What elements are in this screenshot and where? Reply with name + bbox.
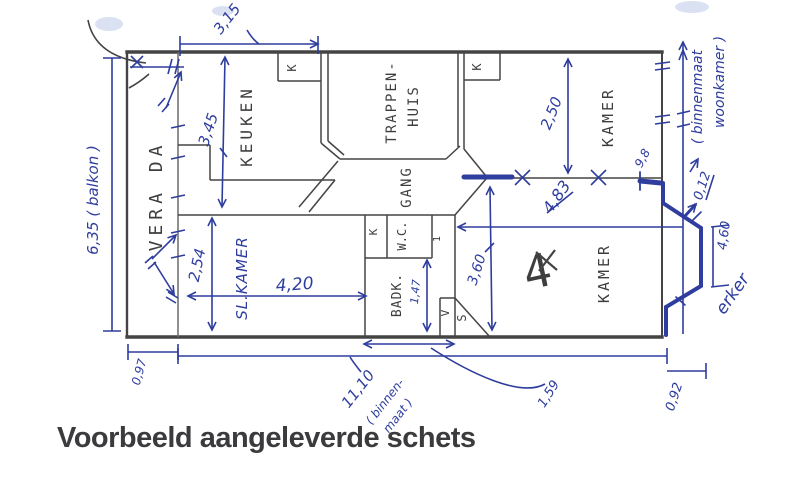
erker-tick xyxy=(693,212,701,220)
caption-title: Voorbeeld aangeleverde schets xyxy=(57,422,476,455)
smudge xyxy=(95,17,123,31)
label-v-box: V xyxy=(439,309,452,316)
dim-slk-height: 2,54 xyxy=(185,247,210,283)
chevron xyxy=(158,98,165,106)
chevron xyxy=(162,104,169,112)
dim-balkon: 6,35 ( balkon ) xyxy=(84,145,102,255)
chevron xyxy=(145,256,153,263)
thick-wall-segment-right xyxy=(640,181,661,183)
label-kast-a: K xyxy=(285,64,299,72)
label-gang: GANG xyxy=(399,166,415,208)
label-s-mark: S xyxy=(455,314,469,321)
label-one-mark: 1 xyxy=(432,236,443,242)
tick xyxy=(655,62,670,64)
note-binnenmaat-2: woonkamer ) xyxy=(712,36,728,128)
leader-top-width xyxy=(247,30,259,44)
pen-heavy-marks xyxy=(464,172,701,335)
dim-seg-159: 1,59 xyxy=(535,378,563,411)
tick xyxy=(655,68,670,70)
pen-dimension-lines xyxy=(103,30,729,388)
dim-veranda-width: 0,97 xyxy=(129,357,150,387)
wall-gang-nw2 xyxy=(309,180,335,212)
dim-kamer-bottom-width: 4,83 xyxy=(538,177,574,217)
smudge xyxy=(675,1,709,13)
wall-trap-se xyxy=(446,146,460,159)
tick xyxy=(655,122,670,124)
dim-kamer-bottom-depth: 3,60 xyxy=(465,252,490,287)
wall-trap-sw xyxy=(321,143,340,159)
highlight-smudges xyxy=(95,1,709,31)
label-keuken: KEUKEN xyxy=(237,85,256,167)
note-binnenmaat-1: ( binnenmaat xyxy=(690,49,706,144)
leader-3-60 xyxy=(485,243,494,252)
arrow-0-12 xyxy=(690,159,698,172)
tick xyxy=(166,297,176,303)
label-kast-b: K xyxy=(470,63,484,71)
dim-badk-depth: 1,47 xyxy=(408,279,423,305)
dim-line-keuken-depth xyxy=(222,57,225,207)
leader-11-10 xyxy=(350,357,361,372)
label-kamer-bottom: KAMER xyxy=(595,243,613,303)
sketch-page: 4 VERA DA KEUKEN TRAPPEN- HUIS GANG KAME… xyxy=(0,0,800,483)
swing-arrow-3 xyxy=(154,262,174,294)
dim-line-kamer-bottom-depth xyxy=(490,187,492,330)
wall-gang-se xyxy=(455,179,486,215)
label-trappenhuis-1: TRAPPEN- xyxy=(384,60,400,143)
dim-top-width: 3,15 xyxy=(210,0,245,37)
door-arcs xyxy=(88,20,149,88)
dim-keuken-depth: 3,45 xyxy=(195,111,222,148)
tick xyxy=(655,115,670,117)
label-veranda: VERA DA xyxy=(146,141,167,252)
label-erker: erker xyxy=(712,269,755,318)
dimension-labels: 3,15 6,35 ( balkon ) 3,45 2,54 SL.KAMER … xyxy=(84,0,755,435)
floorplan-sketch: 4 VERA DA KEUKEN TRAPPEN- HUIS GANG KAME… xyxy=(0,0,800,483)
label-badkamer: BADK. xyxy=(390,273,405,317)
dim-erker-depth: 0,92 xyxy=(663,381,686,413)
dim-slk-width: 4,20 xyxy=(275,274,314,297)
label-slaapkamer: SL.KAMER xyxy=(233,236,251,320)
wall-gang-ne xyxy=(464,149,486,176)
dim-erker-face: 4,60 xyxy=(715,220,734,251)
bold-ne-arrow xyxy=(685,204,696,216)
dim-total-width: 11,10 xyxy=(338,366,379,411)
label-trappenhuis-2: HUIS xyxy=(406,85,422,127)
room-number-4: 4 xyxy=(518,242,556,301)
door-arc-small xyxy=(129,74,149,88)
wall-trap-sw2 xyxy=(328,141,344,155)
label-wc: W.C. xyxy=(395,222,409,251)
dim-door-width: 9,8 xyxy=(632,146,653,170)
leader-1-59 xyxy=(431,348,545,388)
label-kamer-top: KAMER xyxy=(599,87,617,147)
dim-kamer-top-depth: 2,50 xyxy=(537,94,566,132)
label-kast-c: K xyxy=(367,228,380,235)
